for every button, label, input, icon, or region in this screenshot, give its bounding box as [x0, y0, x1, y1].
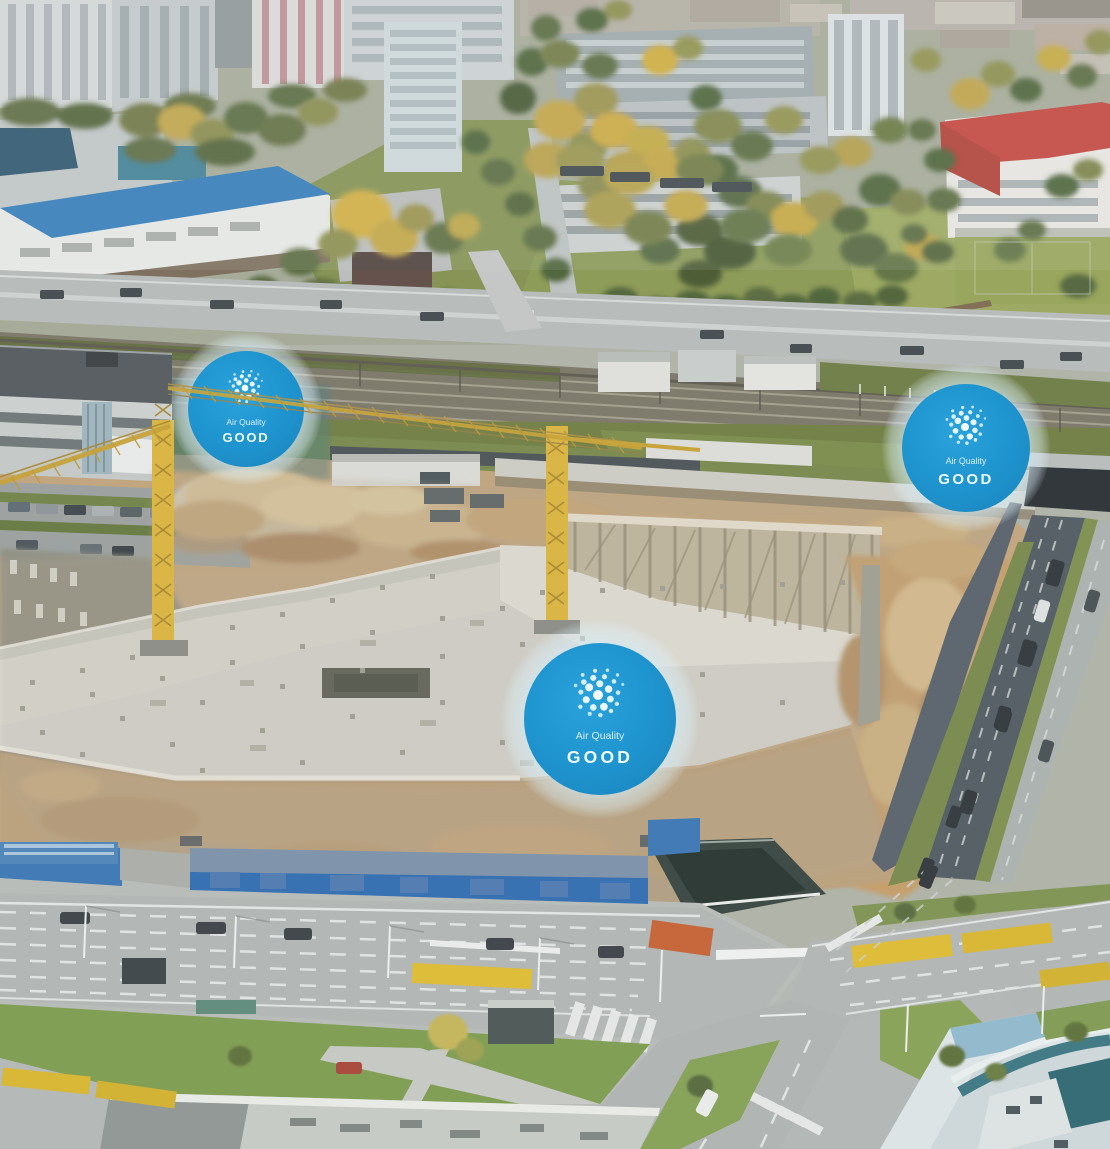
svg-text:Air Quality: Air Quality	[576, 730, 625, 742]
svg-text:GOOD: GOOD	[223, 430, 270, 445]
svg-text:GOOD: GOOD	[938, 471, 993, 488]
svg-text:Air Quality: Air Quality	[946, 456, 987, 466]
svg-text:Air Quality: Air Quality	[226, 417, 266, 427]
svg-text:GOOD: GOOD	[567, 747, 633, 767]
